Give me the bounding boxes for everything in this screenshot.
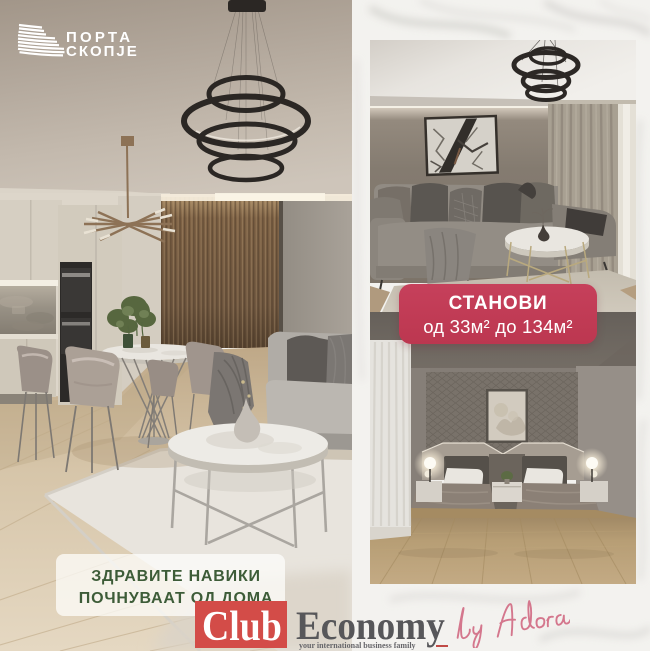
svg-text:СКОПЈЕ: СКОПЈЕ bbox=[66, 43, 139, 60]
